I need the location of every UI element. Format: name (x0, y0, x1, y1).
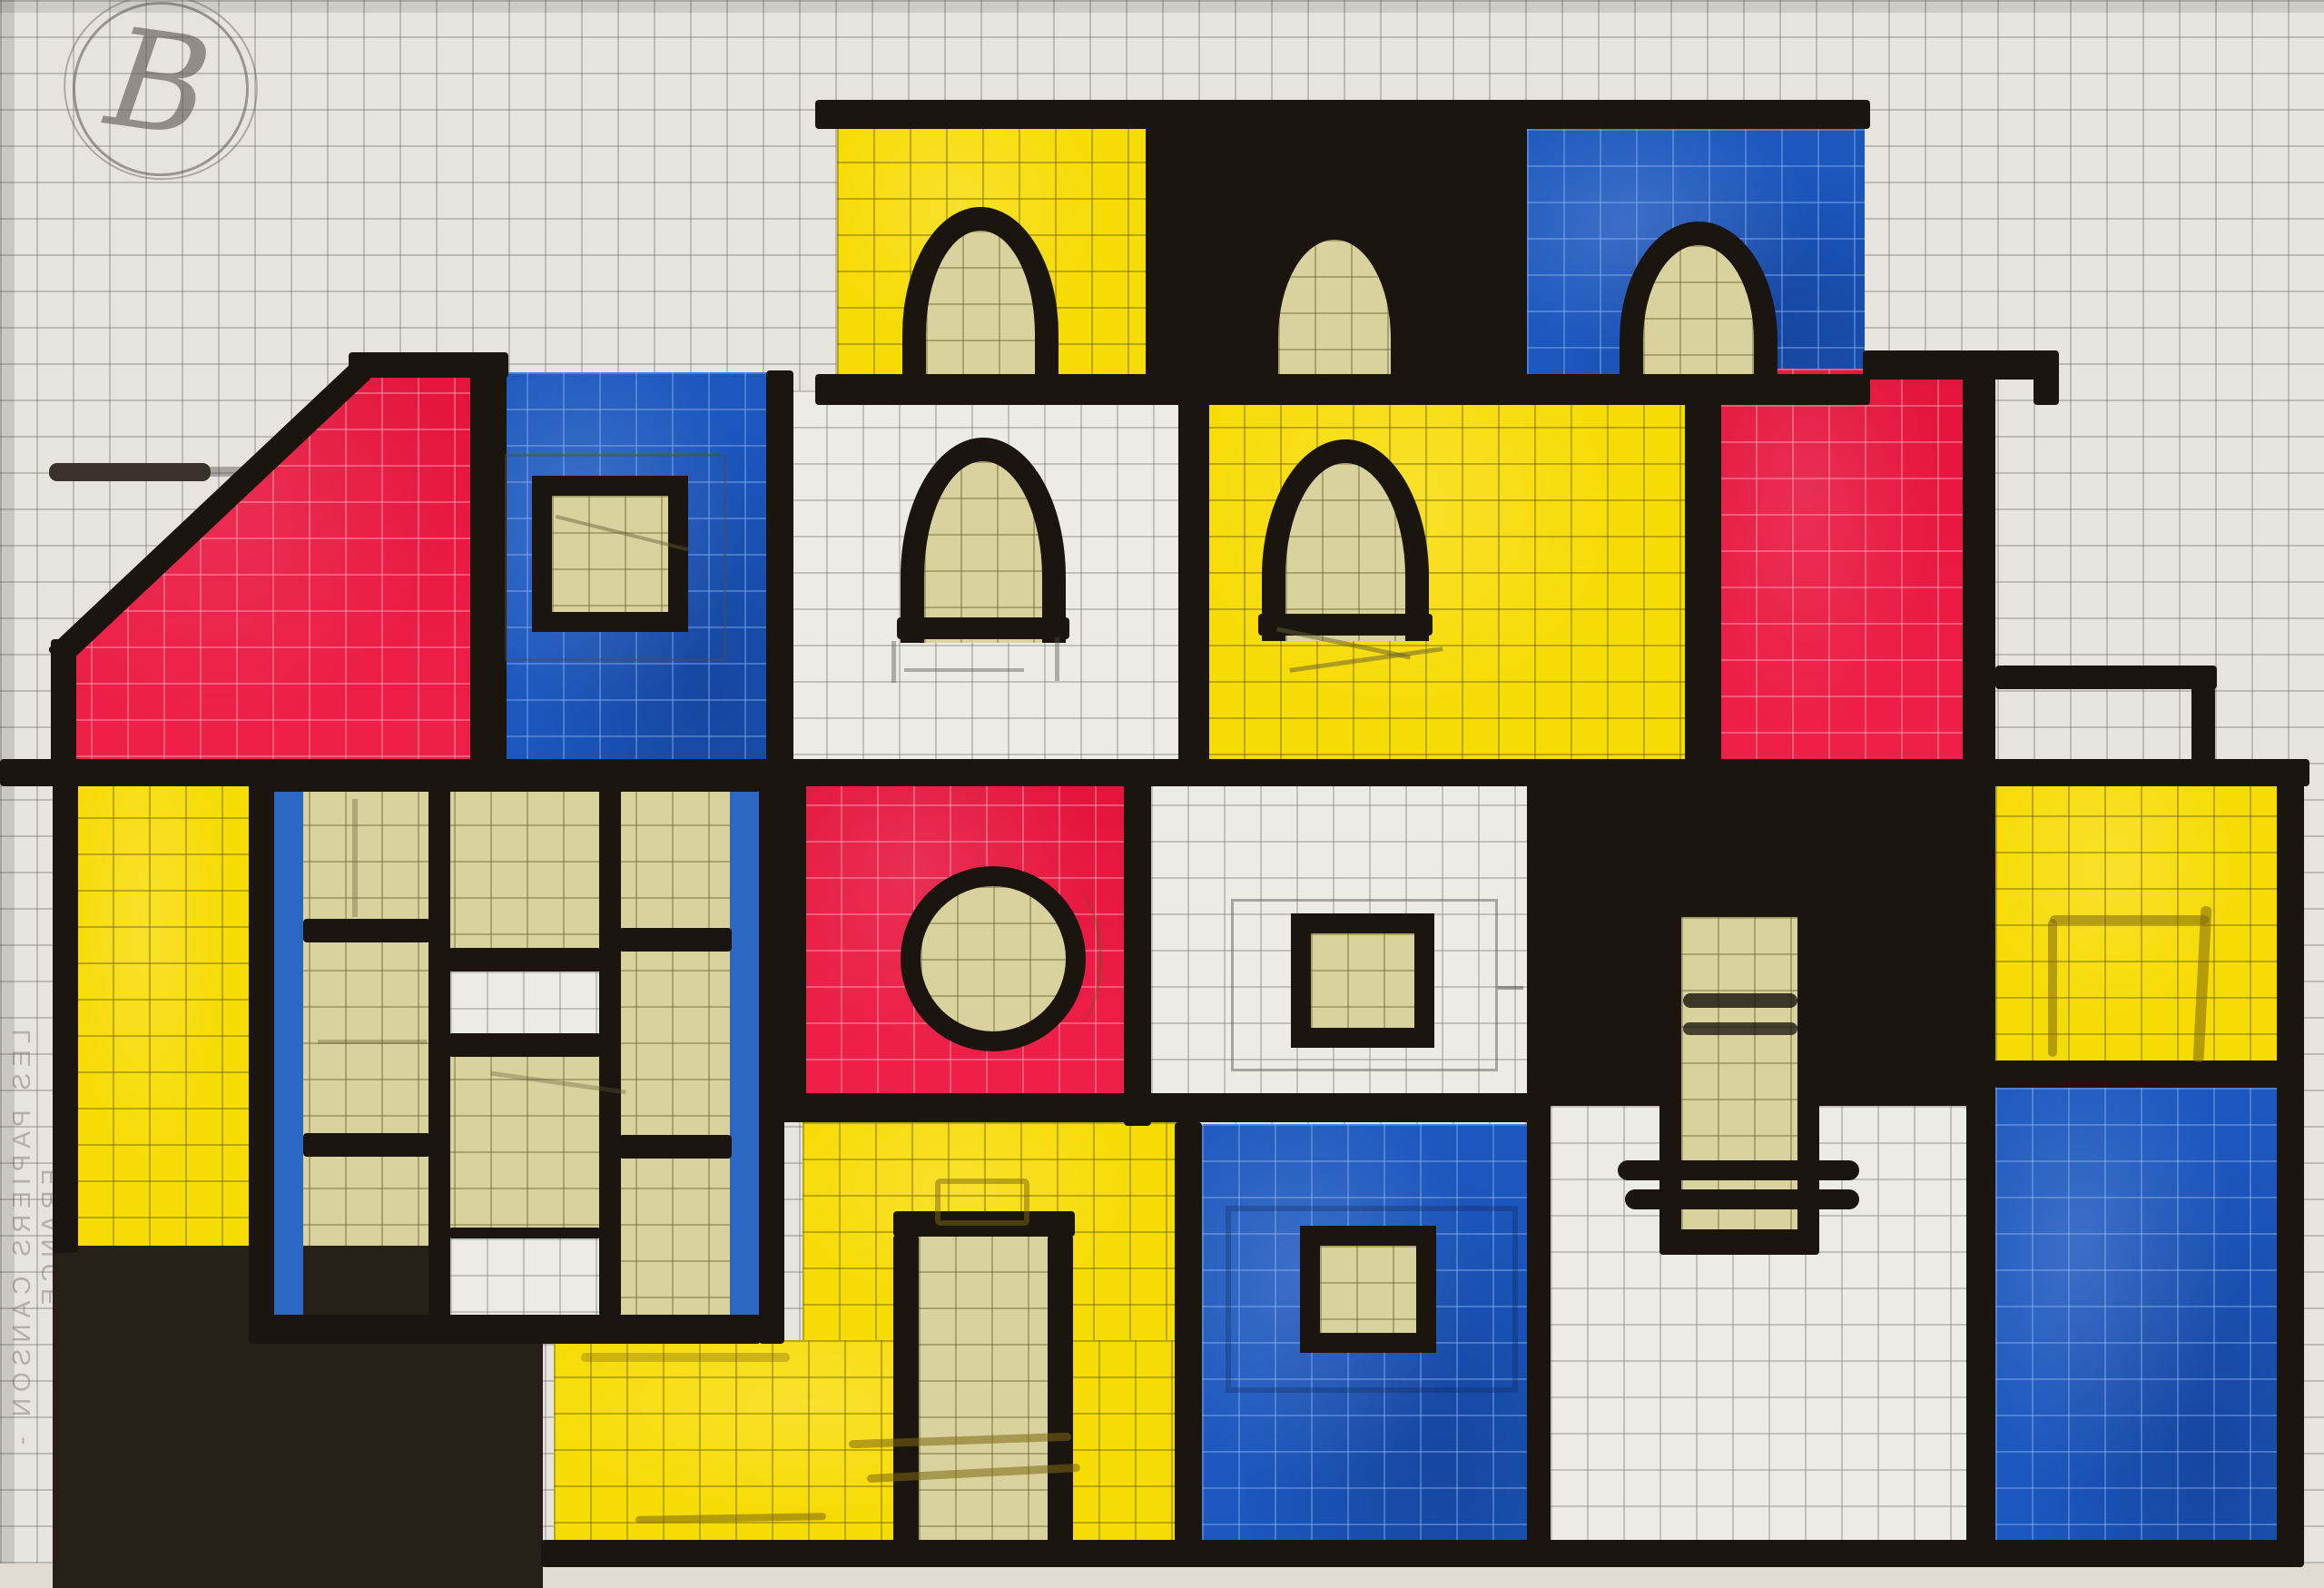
white-square-window (1291, 913, 1434, 1048)
top-right-step-stub (2033, 374, 2059, 405)
shutter-panel (1681, 917, 1797, 1231)
horizon-line (0, 759, 2309, 786)
door-jamb-right (1048, 1235, 1073, 1547)
middle-blue-square-window (1300, 1226, 1436, 1353)
attic-bottom-edge (815, 374, 1870, 405)
window-grid-mullion-h5 (448, 1228, 601, 1238)
door-panel (919, 1235, 1048, 1547)
attic-top-edge (815, 100, 1870, 129)
shutter-rung-2 (1683, 1022, 1797, 1035)
railing-right-post (2191, 686, 2215, 770)
divider-yellow-blue-bottom (1175, 1122, 1202, 1549)
house-right-edge-lower (2277, 772, 2304, 1554)
white-window-pencil-right (1055, 637, 1059, 681)
window-grid-frame-bottom (249, 1315, 761, 1344)
window-grid-frame-left (249, 766, 274, 1344)
porthole-pencil-arc (1044, 890, 1102, 1026)
upper-blue-square-window (532, 476, 688, 632)
window-grid-mullion-h3 (448, 948, 601, 972)
window-grid-frame-right (759, 766, 784, 1344)
left-yellow-column (76, 781, 251, 1251)
right-yellow-pencil-left (2048, 919, 2057, 1057)
white-window-pencil-base (904, 668, 1024, 672)
house-right-edge-upper (1963, 360, 1995, 777)
door-handle-pencil-sketch (935, 1179, 1029, 1226)
window-grid-blue-strip-right (730, 788, 761, 1318)
top-right-step-bar (1863, 350, 2059, 380)
house-right-column-divider (1966, 774, 1995, 1551)
divider-blue-ladder (1527, 1082, 1551, 1554)
window-grid-pencil-stroke-2 (318, 1040, 427, 1044)
right-yellow-bottom-bar (1994, 1060, 2280, 1088)
paper-watermark: LES PAPIERS CANSON - FRANCE (7, 986, 40, 1494)
door-jamb-left (893, 1235, 919, 1547)
railing-top-rail (1995, 666, 2217, 689)
window-grid-white-pane-2 (450, 1238, 599, 1315)
divider-blue-white (766, 370, 793, 777)
window-grid-mullion-v1 (428, 788, 450, 1317)
photo-of-drawing: B LES PAPIERS CANSON - FRANCE (0, 0, 2324, 1588)
window-grid-pencil-stroke-1 (352, 799, 358, 917)
divider-white-yellow (1178, 387, 1209, 777)
ladder-rung-wide-1 (1618, 1160, 1859, 1180)
house-left-edge (53, 779, 78, 1253)
upper-red-right-block (1719, 369, 1963, 774)
window-grid-mullion-h7 (619, 1135, 732, 1159)
window-grid-white-pane-1 (450, 972, 599, 1033)
white-square-window-pencil-tick (1498, 986, 1523, 990)
window-grid-blue-strip-left (272, 788, 303, 1318)
paper-top-shadow (0, 0, 2324, 13)
white-window-pencil-left (891, 641, 896, 683)
right-yellow-pencil-top (2050, 915, 2210, 924)
signature-letter: B (98, 0, 228, 171)
window-grid-mullion-h4 (448, 1033, 601, 1057)
stray-ink-mark (49, 463, 211, 481)
shutter-bottom-bar (1659, 1229, 1819, 1255)
divider-red-blue (470, 360, 507, 777)
window-grid-mullion-h6 (619, 928, 732, 952)
middle-row-bottom-bar (779, 1093, 1547, 1122)
yellow-block-olive-smudge (581, 1353, 790, 1362)
shutter-rung-1 (1683, 993, 1797, 1008)
window-grid-mullion-h2 (303, 1133, 430, 1157)
upper-white-window-sill (897, 617, 1069, 639)
window-grid-mullion-v2 (599, 788, 621, 1317)
ground-line (541, 1540, 2304, 1567)
divider-yellow-red (1685, 360, 1721, 777)
ladder-rung-wide-2 (1625, 1189, 1859, 1209)
right-blue-block (1995, 1088, 2280, 1549)
red-circle-frame-right (1124, 766, 1151, 1126)
pentagon-left-edge (51, 639, 76, 777)
window-grid-mullion-h1 (303, 919, 430, 942)
